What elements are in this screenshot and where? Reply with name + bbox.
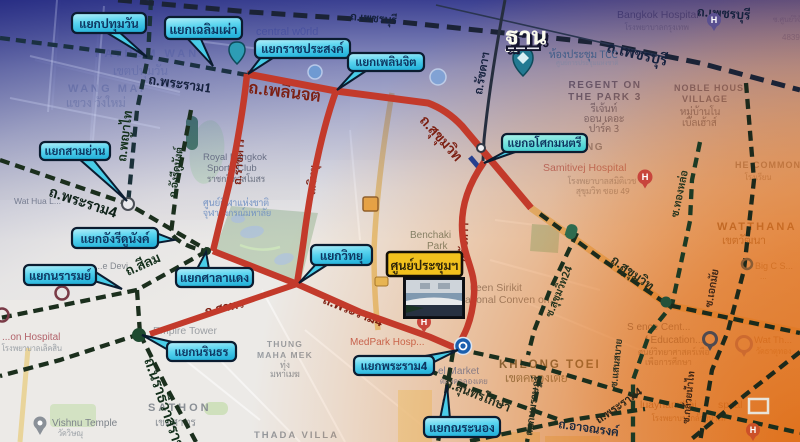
svg-text:H: H	[750, 425, 757, 435]
svg-text:H: H	[642, 172, 649, 183]
svg-text:H: H	[711, 15, 718, 25]
